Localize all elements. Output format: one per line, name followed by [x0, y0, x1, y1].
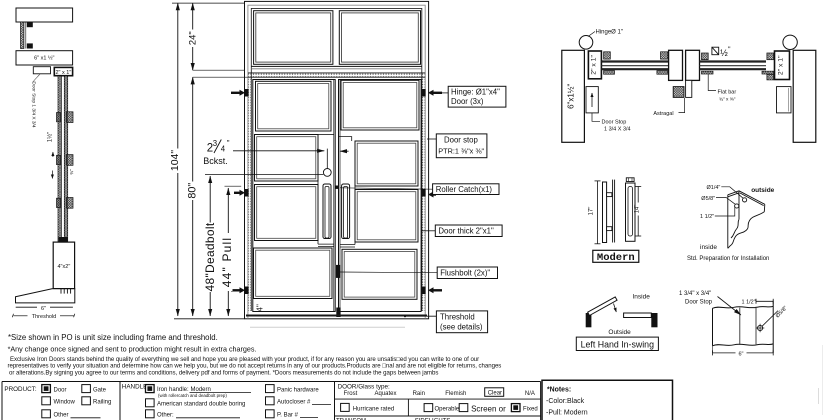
svg-text:PRODUCT:: PRODUCT: [4, 386, 36, 393]
svg-text:Panic hardware: Panic hardware [277, 387, 319, 393]
svg-text:44" Pull: 44" Pull [220, 237, 234, 288]
svg-text:Door stop: Door stop [444, 136, 478, 145]
svg-text:Flemish: Flemish [445, 391, 466, 397]
svg-text:24": 24" [187, 31, 198, 45]
svg-text:Iron handle:: Iron handle: [157, 387, 189, 393]
svg-text:PTR:1 ⅜"x ⅜": PTR:1 ⅜"x ⅜" [438, 146, 484, 155]
svg-text:Door Stop: Door Stop [685, 300, 713, 306]
svg-text:Operable: Operable [435, 406, 460, 412]
svg-text:14": 14" [634, 205, 640, 214]
svg-text:Railing: Railing [93, 400, 111, 406]
svg-text:Screen or: Screen or [471, 404, 506, 413]
svg-text:Ø5/8": Ø5/8" [775, 305, 789, 319]
svg-text:6" x1 ½": 6" x1 ½" [34, 54, 54, 61]
svg-text:1 3/4 X 3/4: 1 3/4 X 3/4 [604, 126, 631, 132]
svg-text:Autocloser #: Autocloser # [277, 400, 311, 406]
svg-text:3: 3 [213, 139, 217, 148]
svg-text:American standard double borin: American standard double boring [157, 401, 245, 407]
svg-text:Hurricane rated: Hurricane rated [353, 406, 394, 412]
svg-text:P. Bar #: P. Bar # [277, 413, 299, 419]
svg-text:Door Stop 1 3/4 X 3/4: Door Stop 1 3/4 X 3/4 [31, 81, 37, 127]
svg-text:½: ½ [720, 48, 728, 58]
svg-text:80": 80" [186, 183, 198, 199]
svg-text:17": 17" [588, 207, 594, 216]
svg-text:N/A: N/A [525, 391, 535, 397]
svg-text:Other:: Other: [157, 413, 174, 419]
svg-text:Frost: Frost [344, 391, 358, 397]
svg-text:6"x1½": 6"x1½" [566, 84, 575, 109]
svg-text:Astragal: Astragal [653, 111, 673, 117]
svg-text:¾" x ⅜": ¾" x ⅜" [719, 97, 736, 103]
svg-text:Door (3x): Door (3x) [451, 97, 484, 106]
svg-text:48"Deadbolt: 48"Deadbolt [203, 222, 217, 291]
svg-text:outside: outside [751, 187, 774, 194]
svg-text:Door: Door [54, 387, 67, 393]
svg-text:Threshold: Threshold [32, 314, 56, 320]
svg-text:Aquatex: Aquatex [375, 391, 397, 397]
svg-text:*Any change once signed and se: *Any change once signed and sent to prod… [8, 345, 257, 354]
svg-text:Threshold: Threshold [440, 312, 475, 321]
svg-text:Roller Catch(x1): Roller Catch(x1) [436, 185, 493, 194]
svg-text:4"x2": 4"x2" [58, 264, 71, 270]
svg-text:4": 4" [255, 304, 265, 312]
svg-text:": " [227, 139, 230, 148]
svg-text:2" x 1": 2" x 1" [778, 55, 785, 75]
svg-text:1 1/2": 1 1/2" [742, 300, 756, 306]
svg-text:2" x 1": 2" x 1" [55, 70, 71, 76]
svg-text:Clear: Clear [488, 391, 502, 397]
svg-text:HANDLE: HANDLE [122, 383, 148, 390]
svg-text:*Size shown in PO is unit size: *Size shown in PO is unit size including… [8, 333, 218, 342]
svg-text:(with rollercatch and deadbolt: (with rollercatch and deadbolt prep) [158, 393, 227, 398]
svg-text:1 3/4" x 3/4": 1 3/4" x 3/4" [679, 291, 711, 297]
svg-text:4: 4 [221, 144, 226, 153]
svg-text:2" x 1": 2" x 1" [590, 55, 597, 75]
svg-text:": " [728, 47, 731, 54]
svg-text:Fixed: Fixed [523, 406, 538, 412]
svg-text:1½": 1½" [47, 132, 54, 142]
svg-text:-Color:Black: -Color:Black [546, 398, 585, 405]
svg-text:DOOR/Glass type:: DOOR/Glass type: [338, 383, 390, 390]
svg-text:Other: Other [54, 413, 69, 419]
svg-text:or alterations.By signing you: or alterations.By signing you agree to o… [9, 369, 438, 376]
svg-text:Flushbolt (2x)": Flushbolt (2x)" [440, 269, 490, 278]
svg-text:(see details): (see details) [440, 323, 483, 332]
svg-text:Ø5/8": Ø5/8" [701, 196, 715, 202]
svg-text:¾": ¾" [69, 169, 75, 175]
svg-text:Inside: Inside [633, 294, 651, 301]
svg-text:Modern: Modern [597, 252, 635, 264]
svg-text:104": 104" [169, 150, 181, 172]
svg-text:Gate: Gate [93, 387, 107, 393]
svg-text:*Notes:: *Notes: [547, 386, 571, 393]
svg-text:-Pull: Modern: -Pull: Modern [546, 410, 588, 417]
svg-text:Modern: Modern [191, 387, 211, 393]
svg-text:6": 6" [738, 351, 743, 357]
svg-text:Rain: Rain [413, 391, 425, 397]
svg-text:Bckst.: Bckst. [203, 156, 228, 166]
svg-text:Flat bar: Flat bar [718, 90, 737, 96]
svg-text:Left Hand In-swing: Left Hand In-swing [581, 339, 654, 349]
svg-text:Outside: Outside [608, 329, 631, 336]
svg-text:HingeØ 1": HingeØ 1" [596, 30, 623, 36]
svg-text:Window: Window [54, 400, 76, 406]
svg-text:6": 6" [41, 306, 46, 312]
svg-text:1 1/2": 1 1/2" [700, 214, 714, 220]
svg-text:Hinge: Ø1"x4": Hinge: Ø1"x4" [451, 87, 500, 96]
svg-text:inside: inside [700, 244, 717, 251]
svg-text:Ø1/4": Ø1/4" [707, 185, 721, 191]
svg-text:Door Stop: Door Stop [602, 119, 627, 125]
svg-text:Door thick 2"x1": Door thick 2"x1" [438, 227, 494, 236]
svg-text:Std. Preparation for Installat: Std. Preparation for Installation [687, 256, 769, 262]
